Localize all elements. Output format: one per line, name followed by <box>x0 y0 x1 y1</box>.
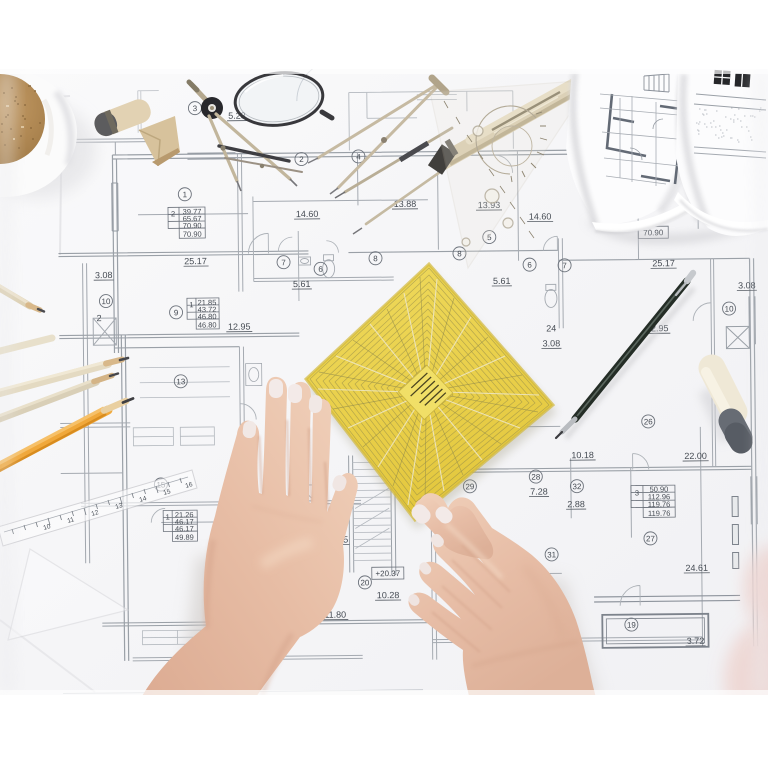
svg-text:9: 9 <box>174 308 179 317</box>
svg-text:1: 1 <box>166 512 170 521</box>
svg-text:3.08: 3.08 <box>543 338 561 348</box>
svg-text:4: 4 <box>356 152 361 161</box>
svg-text:+20.37: +20.37 <box>375 569 400 578</box>
svg-text:119.76: 119.76 <box>648 509 670 518</box>
svg-text:20: 20 <box>360 578 370 587</box>
svg-text:13.88: 13.88 <box>394 199 417 209</box>
svg-text:25.17: 25.17 <box>652 258 675 268</box>
svg-text:119.76: 119.76 <box>648 500 670 509</box>
svg-text:19: 19 <box>627 621 637 630</box>
svg-text:13: 13 <box>176 377 186 386</box>
svg-text:10.18: 10.18 <box>571 450 594 460</box>
svg-text:24: 24 <box>546 323 556 333</box>
svg-text:24.61: 24.61 <box>685 563 708 573</box>
svg-text:46.80: 46.80 <box>198 320 217 329</box>
svg-text:3: 3 <box>193 104 198 113</box>
svg-text:7.28: 7.28 <box>530 486 548 496</box>
svg-text:10.28: 10.28 <box>377 590 400 600</box>
svg-text:14.60: 14.60 <box>296 209 319 219</box>
svg-text:12.95: 12.95 <box>228 322 251 332</box>
svg-text:32: 32 <box>572 482 582 491</box>
svg-text:8: 8 <box>373 254 378 263</box>
svg-text:31: 31 <box>547 550 557 559</box>
svg-text:25.17: 25.17 <box>184 256 207 266</box>
svg-text:8: 8 <box>457 249 462 258</box>
svg-text:26: 26 <box>644 417 654 426</box>
svg-text:27: 27 <box>646 534 656 543</box>
svg-text:49.89: 49.89 <box>175 533 194 542</box>
svg-text:3.08: 3.08 <box>738 280 756 290</box>
svg-text:5.61: 5.61 <box>493 276 511 286</box>
svg-text:2: 2 <box>299 155 304 164</box>
svg-text:3: 3 <box>635 489 639 498</box>
svg-text:7: 7 <box>281 258 286 267</box>
svg-text:2.88: 2.88 <box>567 499 585 509</box>
svg-text:70.90: 70.90 <box>183 230 202 239</box>
svg-text:14.60: 14.60 <box>529 211 552 221</box>
svg-text:3.72: 3.72 <box>687 636 705 646</box>
svg-text:3.08: 3.08 <box>95 270 113 280</box>
svg-text:28: 28 <box>531 473 541 482</box>
svg-text:2: 2 <box>171 209 175 218</box>
svg-text:1: 1 <box>183 190 188 199</box>
svg-text:6: 6 <box>318 265 323 274</box>
svg-text:10: 10 <box>725 304 735 313</box>
svg-text:2: 2 <box>97 313 102 323</box>
svg-text:7: 7 <box>562 261 567 270</box>
svg-text:1: 1 <box>189 300 193 309</box>
svg-text:10: 10 <box>101 297 111 306</box>
svg-text:22.00: 22.00 <box>684 451 707 461</box>
svg-text:6: 6 <box>527 261 532 270</box>
svg-text:5.61: 5.61 <box>293 279 311 289</box>
